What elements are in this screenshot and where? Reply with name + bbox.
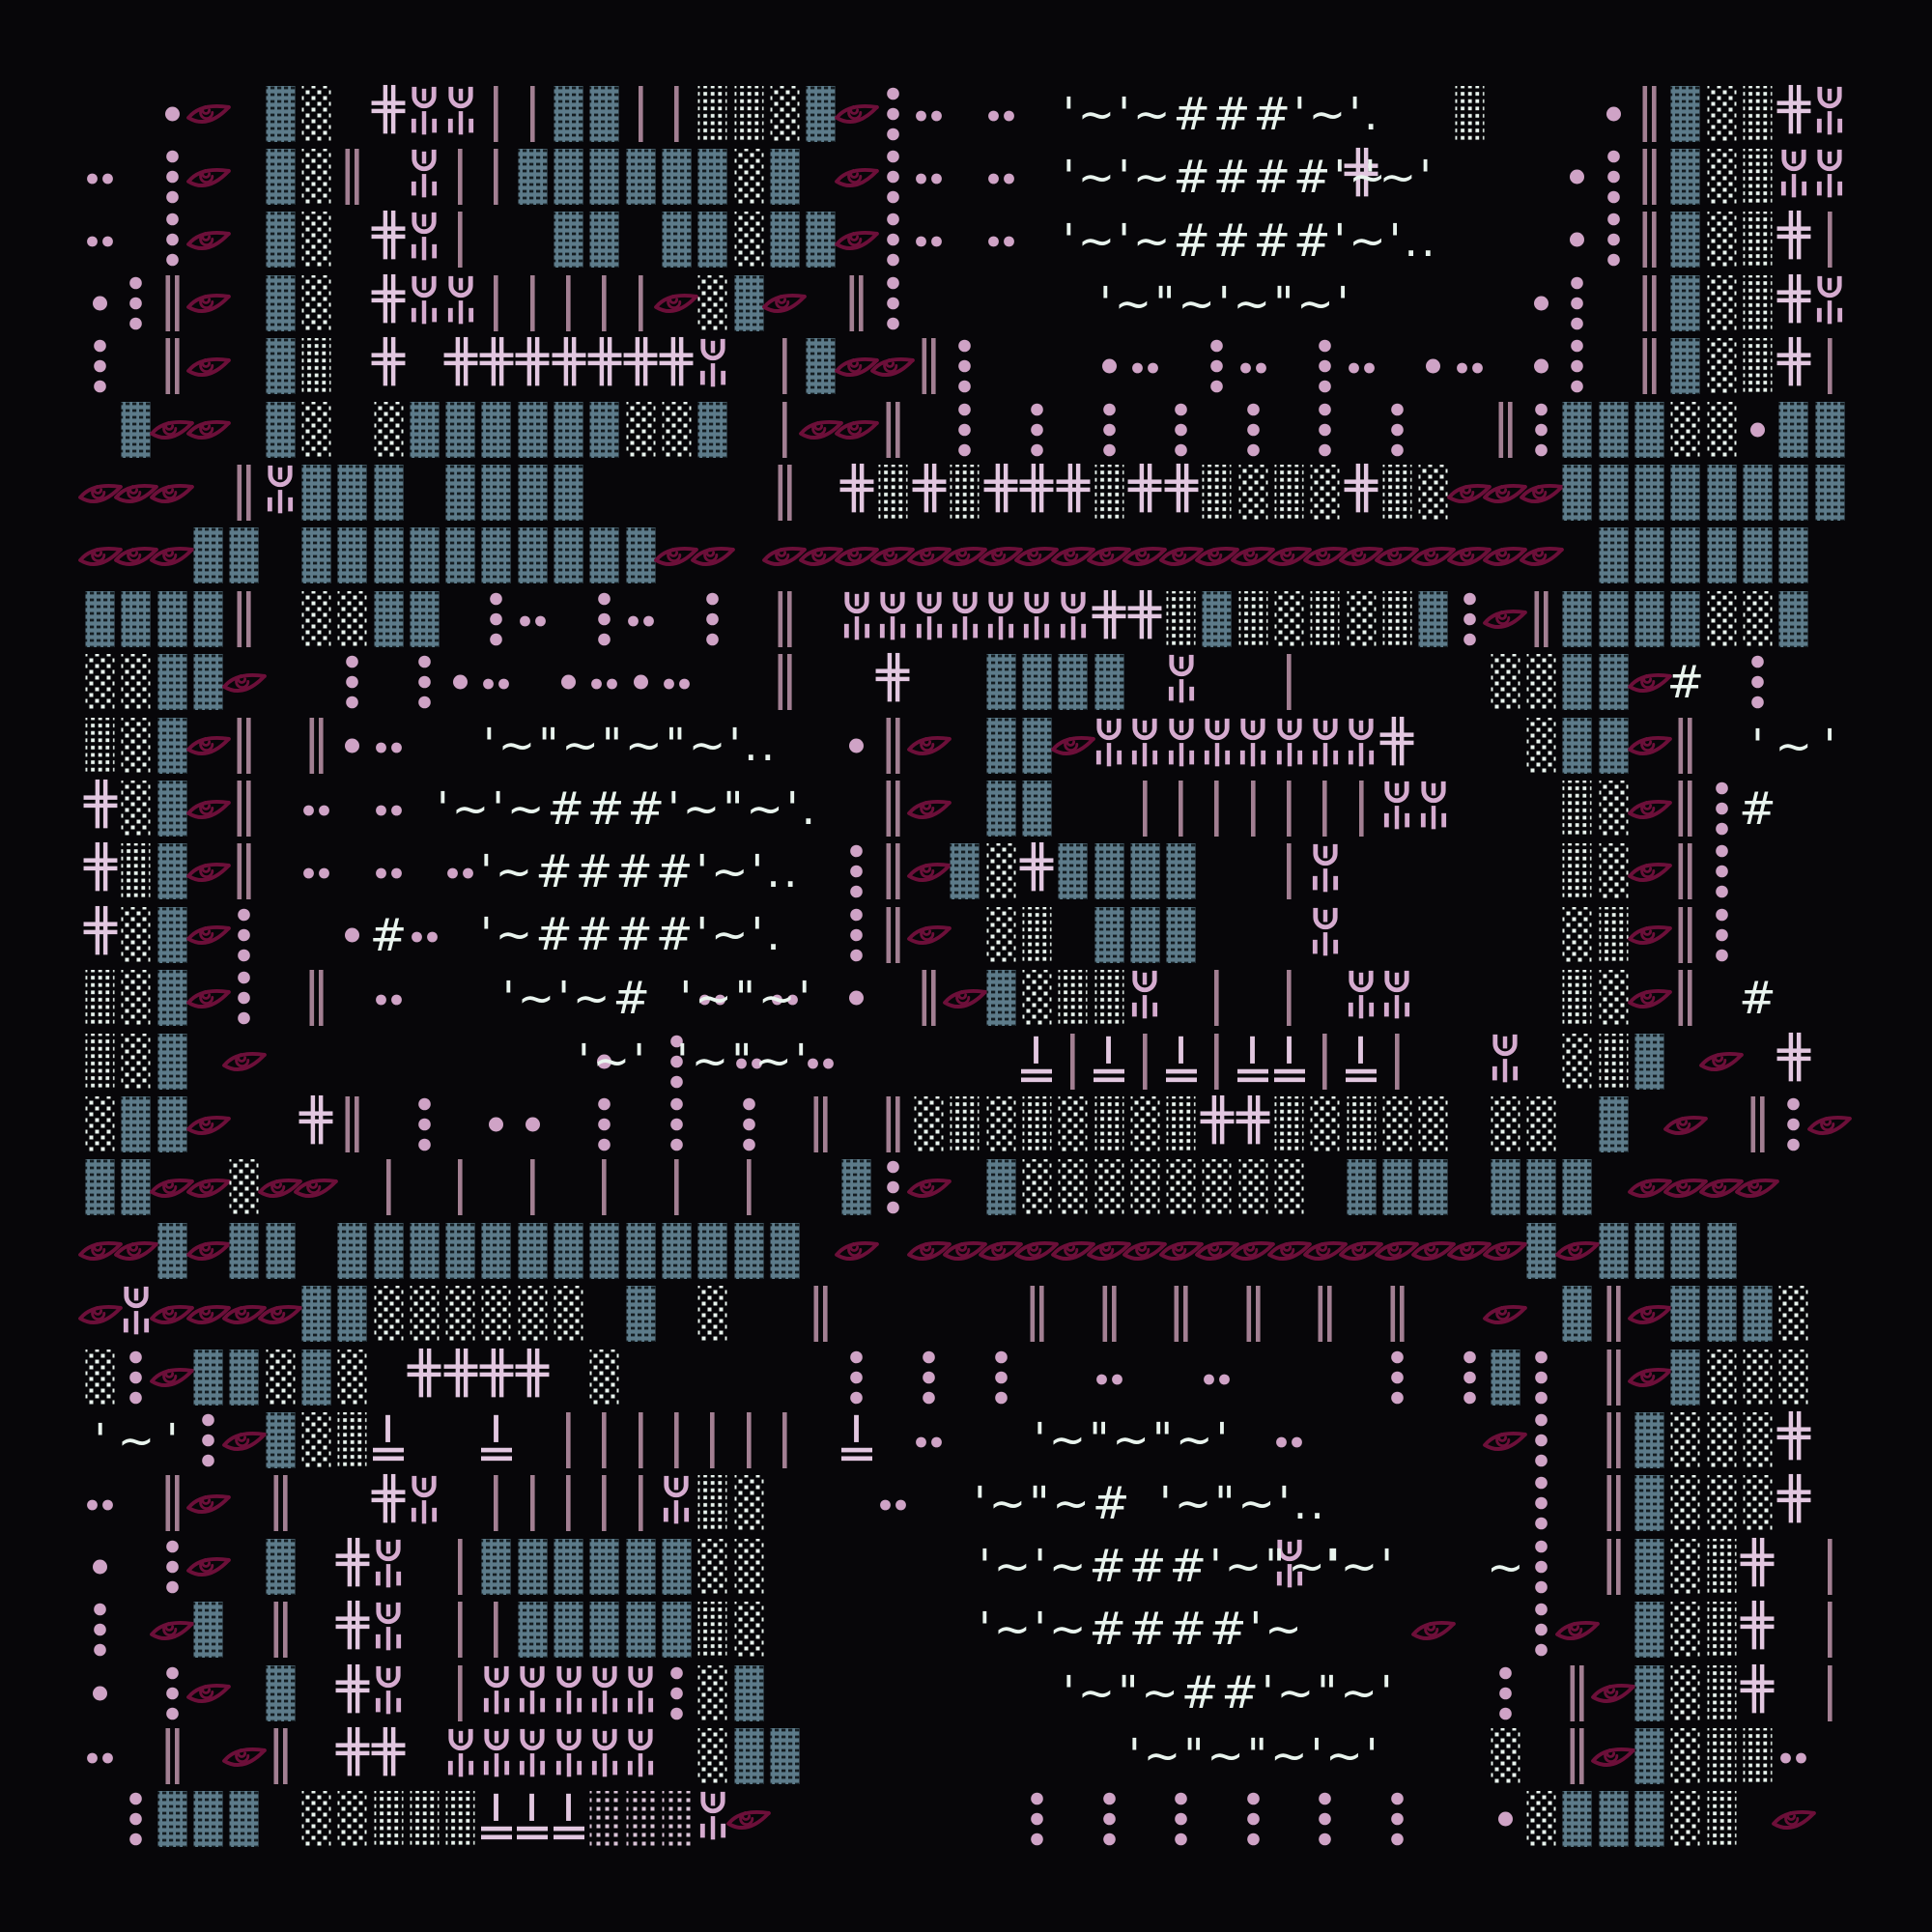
slate-block <box>551 1599 586 1662</box>
slate-block <box>695 145 730 208</box>
eye-icon <box>1811 1093 1847 1155</box>
slate-block <box>586 209 622 271</box>
trident-icon <box>1163 651 1199 714</box>
eye-icon <box>190 398 226 461</box>
slate-block <box>1632 1219 1667 1282</box>
slate-block <box>1667 145 1703 208</box>
slate-block <box>515 398 551 461</box>
sparse-dot-block <box>1667 1788 1703 1851</box>
trident-icon <box>118 1283 154 1346</box>
double-bar-icon <box>1379 1283 1415 1346</box>
sparse-dot-block <box>1199 1156 1235 1219</box>
bar-icon <box>1811 1662 1847 1724</box>
sparse-dot-block <box>586 1346 622 1408</box>
slate-block <box>155 714 190 777</box>
eye-icon <box>1776 1788 1811 1851</box>
cross-icon <box>370 209 406 271</box>
dot-pair-icon <box>298 840 334 903</box>
cross-icon <box>334 1724 370 1787</box>
slate-block <box>1811 398 1847 461</box>
dot-pair-icon <box>82 1724 118 1787</box>
bar-icon <box>695 1408 730 1471</box>
sparse-dot-block <box>695 1283 730 1346</box>
dense-dot-block <box>1271 1093 1307 1155</box>
trident-icon <box>1091 714 1126 777</box>
eye-icon <box>190 903 226 966</box>
double-bar-icon <box>298 714 334 777</box>
double-bar-icon <box>226 714 262 777</box>
eye-icon <box>263 1283 298 1346</box>
dot-icon <box>82 1535 118 1598</box>
slate-block <box>515 461 551 524</box>
sparse-dot-block <box>1523 1093 1559 1155</box>
eye-icon <box>695 525 730 587</box>
slate-block <box>118 1093 154 1155</box>
dense-dot-block <box>370 1788 406 1851</box>
eye-icon <box>190 335 226 398</box>
eye-icon <box>1523 525 1559 587</box>
dot-column-icon <box>838 903 874 966</box>
cross-icon <box>623 335 659 398</box>
dot-pair-icon <box>82 145 118 208</box>
sparse-dot-block <box>695 1662 730 1724</box>
sparse-dot-block <box>298 145 334 208</box>
ascii-face-text: '~####'~'.. <box>480 844 800 898</box>
sparse-dot-block <box>1559 1030 1595 1093</box>
dot-icon <box>838 714 874 777</box>
ascii-face-text: '~'~###'~'. <box>1063 87 1380 141</box>
sparse-dot-block <box>730 209 766 271</box>
sparse-dot-block <box>1740 1408 1776 1471</box>
slate-block <box>1559 587 1595 650</box>
ascii-face-text: '~'~###'~"~' <box>979 1539 1344 1593</box>
sparse-dot-block <box>515 1283 551 1346</box>
dense-dot-block <box>947 461 982 524</box>
trident-icon <box>659 1472 695 1535</box>
eye-icon <box>226 1408 262 1471</box>
cross-icon <box>1019 840 1055 903</box>
hash-glyph: # <box>1667 651 1703 714</box>
slate-block <box>1559 651 1595 714</box>
trident-icon <box>551 1724 586 1787</box>
sparse-dot-block <box>623 398 659 461</box>
eye-icon <box>1632 1283 1667 1346</box>
eye-icon <box>1127 1219 1163 1282</box>
eye-icon <box>190 145 226 208</box>
double-bar-icon <box>1019 1283 1055 1346</box>
slate-block <box>803 209 838 271</box>
bar-icon <box>1811 209 1847 271</box>
eye-icon <box>767 271 803 334</box>
tilde-glyph: ~ <box>1776 714 1811 777</box>
tilde-glyph: ~ <box>1488 1535 1523 1598</box>
dense-dot-block <box>82 714 118 777</box>
slate-block <box>1667 461 1703 524</box>
eye-icon <box>190 82 226 145</box>
slate-block <box>515 525 551 587</box>
cross-icon <box>1344 461 1379 524</box>
ascii-face-text: '~"~"~'~' <box>1128 1728 1380 1782</box>
trident-icon <box>1811 145 1847 208</box>
dot-pair-icon <box>983 82 1019 145</box>
bar-icon <box>478 82 514 145</box>
dot-column-icon <box>226 967 262 1030</box>
slate-block <box>1596 651 1632 714</box>
double-bar-icon <box>1596 1535 1632 1598</box>
dot-column-icon <box>1523 1472 1559 1535</box>
dot-icon <box>442 651 478 714</box>
slate-block <box>155 1030 190 1093</box>
dot-column-icon <box>983 1346 1019 1408</box>
slate-block <box>1667 335 1703 398</box>
slate-block <box>767 1724 803 1787</box>
bar-icon <box>1307 1030 1343 1093</box>
double-bar-icon <box>875 840 911 903</box>
sparse-dot-block <box>1667 1472 1703 1535</box>
sparse-dot-block <box>1667 398 1703 461</box>
slate-block <box>263 1219 298 1282</box>
dot-column-icon <box>1704 777 1740 839</box>
bar-icon <box>478 1599 514 1662</box>
slate-block <box>515 145 551 208</box>
bar-icon <box>515 1472 551 1535</box>
sparse-dot-block <box>298 82 334 145</box>
trident-icon <box>442 82 478 145</box>
sparse-dot-block <box>1271 587 1307 650</box>
double-bar-icon <box>1632 145 1667 208</box>
sparse-dot-block <box>82 651 118 714</box>
eye-icon <box>947 967 982 1030</box>
sparse-dot-block <box>82 1093 118 1155</box>
slate-block <box>1163 840 1199 903</box>
dense-dot-block <box>695 82 730 145</box>
dot-pair-icon <box>370 714 406 777</box>
dense-dot-block <box>1271 461 1307 524</box>
sparse-dot-block <box>1667 1599 1703 1662</box>
dot-pair-icon <box>911 1408 947 1471</box>
cross-icon <box>370 335 406 398</box>
slate-block <box>659 1599 695 1662</box>
slate-block <box>1415 1156 1451 1219</box>
dot-column-icon <box>1163 1788 1199 1851</box>
slate-block <box>1704 525 1740 587</box>
cross-icon <box>370 271 406 334</box>
eye-icon <box>226 1030 262 1093</box>
dot-column-icon <box>1451 587 1487 650</box>
ascii-face-text: '~' <box>1364 150 1435 204</box>
double-bar-icon <box>1632 82 1667 145</box>
bar-icon <box>623 1408 659 1471</box>
slate-block <box>155 840 190 903</box>
dot-column-icon <box>1307 1788 1343 1851</box>
eye-icon <box>911 1156 947 1219</box>
slate-block <box>586 145 622 208</box>
eye-icon <box>911 525 947 587</box>
dense-dot-block <box>1091 461 1126 524</box>
bar-icon <box>1199 777 1235 839</box>
bar-icon <box>442 1599 478 1662</box>
cross-icon <box>1776 1408 1811 1471</box>
trident-icon <box>478 1724 514 1787</box>
slate-block <box>1667 271 1703 334</box>
cross-icon <box>334 1599 370 1662</box>
slate-block <box>407 525 442 587</box>
cross-icon <box>875 651 911 714</box>
eye-icon <box>838 1219 874 1282</box>
double-bar-icon <box>875 1093 911 1155</box>
slate-block <box>551 145 586 208</box>
trident-icon <box>407 1472 442 1535</box>
sparse-dot-block <box>334 1346 370 1408</box>
slate-block <box>551 525 586 587</box>
bar-icon <box>442 1535 478 1598</box>
slate-block <box>1559 1283 1595 1346</box>
ascii-face-text: '~"~# '~"~'.. <box>974 1476 1327 1530</box>
dot-column-icon <box>82 1599 118 1662</box>
eye-icon <box>1451 461 1487 524</box>
dot-column-icon <box>1091 398 1126 461</box>
slate-block <box>551 1535 586 1598</box>
slate-block <box>1055 840 1091 903</box>
slate-block <box>478 1219 514 1282</box>
slate-block <box>190 1346 226 1408</box>
bar-icon <box>1307 777 1343 839</box>
eye-icon <box>155 525 190 587</box>
eye-icon <box>190 840 226 903</box>
slate-block <box>767 1219 803 1282</box>
dot-column-icon <box>1379 1346 1415 1408</box>
slate-block <box>947 840 982 903</box>
slate-block <box>190 651 226 714</box>
dot-column-icon <box>1596 145 1632 208</box>
dot-pair-icon <box>1236 335 1271 398</box>
double-bar-icon <box>911 967 947 1030</box>
bar-icon <box>442 1156 478 1219</box>
eye-icon <box>190 209 226 271</box>
trident-icon <box>1379 967 1415 1030</box>
sparse-dot-block <box>1667 1662 1703 1724</box>
eye-icon <box>838 209 874 271</box>
eye-icon <box>1632 714 1667 777</box>
slate-block <box>586 1219 622 1282</box>
sparse-dot-block <box>1596 840 1632 903</box>
slate-block <box>1559 461 1595 524</box>
dot-pair-icon <box>911 82 947 145</box>
sparse-dot-block <box>983 840 1019 903</box>
eye-icon <box>1488 587 1523 650</box>
sparse-dot-block <box>1488 1093 1523 1155</box>
double-bar-icon <box>155 271 190 334</box>
eye-icon <box>1199 525 1235 587</box>
trident-icon <box>695 1788 730 1851</box>
dot-column-icon <box>118 1346 154 1408</box>
eye-icon <box>659 525 695 587</box>
bar-icon <box>586 271 622 334</box>
double-bar-icon <box>226 840 262 903</box>
trident-icon <box>442 1724 478 1787</box>
double-bar-icon <box>226 587 262 650</box>
dense-dot-block <box>442 1788 478 1851</box>
bar-icon <box>1271 967 1307 1030</box>
bar-icon <box>442 209 478 271</box>
trident-icon <box>370 1535 406 1598</box>
eye-icon <box>190 1662 226 1724</box>
double-bar-icon <box>1523 587 1559 650</box>
trident-icon <box>1811 271 1847 334</box>
eye-icon <box>1019 1219 1055 1282</box>
dense-dot-block <box>1559 840 1595 903</box>
dot-column-icon <box>407 651 442 714</box>
eye-icon <box>1379 525 1415 587</box>
sparse-dot-block <box>911 1093 947 1155</box>
tilde-glyph: ~ <box>118 1408 154 1471</box>
double-bar-icon <box>875 714 911 777</box>
double-bar-icon <box>1632 335 1667 398</box>
dot-column-icon <box>118 1788 154 1851</box>
dot-column-icon <box>1704 840 1740 903</box>
sparse-dot-block <box>1488 651 1523 714</box>
cross-icon <box>983 461 1019 524</box>
bar-icon <box>1199 1030 1235 1093</box>
dot-pair-icon <box>983 209 1019 271</box>
trident-icon <box>1488 1030 1523 1093</box>
dense-dot-block <box>1740 1724 1776 1787</box>
slate-block <box>226 1219 262 1282</box>
slate-block <box>263 271 298 334</box>
eye-icon <box>767 525 803 587</box>
bar-icon <box>659 82 695 145</box>
bar-icon <box>515 1156 551 1219</box>
sparse-dot-block <box>298 1408 334 1471</box>
sparse-dot-block <box>1667 1724 1703 1787</box>
cross-icon <box>1740 1599 1776 1662</box>
cross-icon <box>407 1346 442 1408</box>
dense-dot-block <box>82 1030 118 1093</box>
double-bar-icon <box>1667 967 1703 1030</box>
dot-column-icon <box>947 398 982 461</box>
cross-icon <box>1740 1662 1776 1724</box>
sparse-dot-block <box>1596 777 1632 839</box>
dot-column-icon <box>875 145 911 208</box>
eye-icon <box>1091 525 1126 587</box>
sparse-dot-block <box>1307 461 1343 524</box>
sparse-dot-block <box>1127 1156 1163 1219</box>
trident-icon <box>407 209 442 271</box>
dot-icon <box>1559 145 1595 208</box>
sparse-dot-block <box>370 398 406 461</box>
slate-block <box>695 398 730 461</box>
sparse-dot-block <box>1236 1156 1271 1219</box>
trident-icon <box>623 1724 659 1787</box>
dot-column-icon <box>1776 1093 1811 1155</box>
cross-icon <box>442 1346 478 1408</box>
trident-icon <box>911 587 947 650</box>
trident-icon <box>478 1662 514 1724</box>
dot-column-icon <box>838 840 874 903</box>
dot-icon <box>1523 271 1559 334</box>
bar-icon <box>623 271 659 334</box>
sparse-dot-block <box>1523 651 1559 714</box>
eye-icon <box>1596 1662 1632 1724</box>
dense-dot-block <box>1019 903 1055 966</box>
eye-icon <box>1488 1408 1523 1471</box>
sparse-dot-block <box>1055 1093 1091 1155</box>
sparse-dot-block <box>1704 587 1740 650</box>
eye-icon <box>1236 525 1271 587</box>
cross-icon <box>1163 461 1199 524</box>
slate-block <box>1596 525 1632 587</box>
slate-block <box>767 145 803 208</box>
eye-icon <box>190 271 226 334</box>
eye-icon <box>1055 714 1091 777</box>
double-bar-icon <box>1596 1283 1632 1346</box>
sparse-dot-block <box>226 1156 262 1219</box>
sparse-dot-block <box>1776 1346 1811 1408</box>
slate-block <box>1811 461 1847 524</box>
sparse-dot-block <box>1740 1346 1776 1408</box>
trident-icon <box>515 1662 551 1724</box>
slate-block <box>983 714 1019 777</box>
dot-column-icon <box>407 1093 442 1155</box>
slate-block <box>190 587 226 650</box>
slate-block <box>155 651 190 714</box>
cross-icon <box>1776 1030 1811 1093</box>
double-bar-icon <box>803 1093 838 1155</box>
bar-icon <box>478 271 514 334</box>
trident-icon <box>1271 714 1307 777</box>
sparse-dot-block <box>983 903 1019 966</box>
tack-icon <box>1236 1030 1271 1093</box>
eye-icon <box>1488 1283 1523 1346</box>
eye-icon <box>1632 777 1667 839</box>
bar-icon <box>730 1408 766 1471</box>
eye-icon <box>875 335 911 398</box>
slate-block <box>155 587 190 650</box>
slate-block <box>586 82 622 145</box>
dot-icon <box>623 651 659 714</box>
bar-icon <box>515 271 551 334</box>
trident-icon <box>947 587 982 650</box>
dot-column-icon <box>1523 1346 1559 1408</box>
slate-block <box>263 1535 298 1598</box>
dot-icon <box>82 271 118 334</box>
dot-column-icon <box>586 587 622 650</box>
ascii-face-text: '~####'~'. <box>480 907 783 961</box>
sparse-dot-block <box>442 1283 478 1346</box>
slate-block <box>1019 714 1055 777</box>
dot-column-icon <box>155 1662 190 1724</box>
slate-block <box>623 1219 659 1282</box>
bar-icon <box>767 398 803 461</box>
cross-icon <box>298 1093 334 1155</box>
slate-block <box>623 1599 659 1662</box>
eye-icon <box>190 1283 226 1346</box>
slate-block <box>1632 1788 1667 1851</box>
dense-dot-block <box>1055 967 1091 1030</box>
dot-column-icon <box>730 1093 766 1155</box>
eye-icon <box>226 651 262 714</box>
slate-block <box>370 587 406 650</box>
sparse-dot-block <box>407 1283 442 1346</box>
slate-block <box>1055 651 1091 714</box>
slate-block <box>370 525 406 587</box>
slate-block <box>118 587 154 650</box>
cross-icon <box>442 335 478 398</box>
dot-pair-icon <box>478 651 514 714</box>
double-bar-icon <box>875 398 911 461</box>
dense-dot-block <box>1740 271 1776 334</box>
trident-icon <box>1199 714 1235 777</box>
